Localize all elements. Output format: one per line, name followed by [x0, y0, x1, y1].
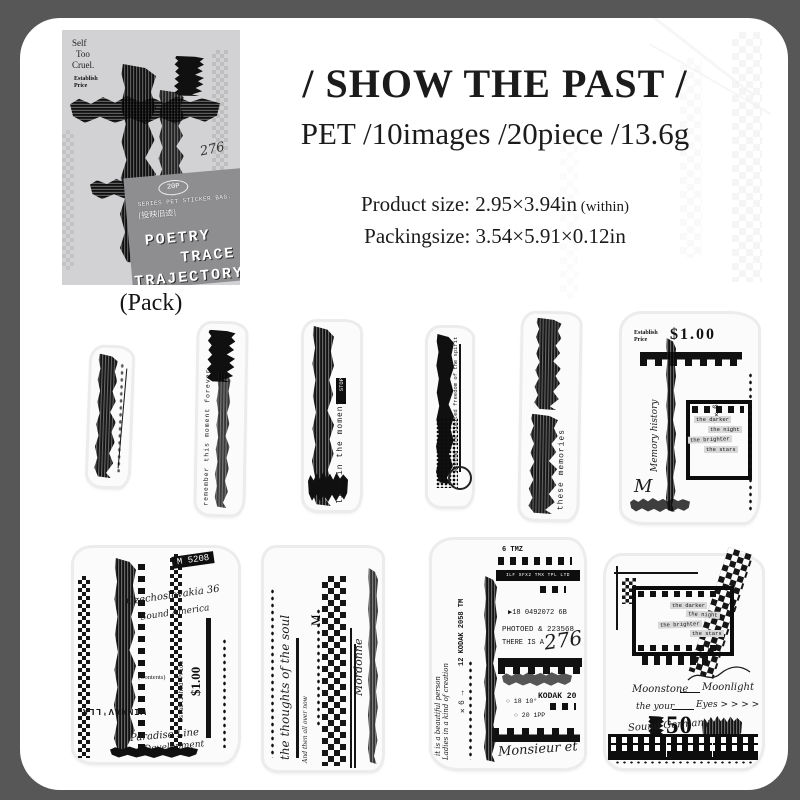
package-chinese-title: [投映旧迹] — [138, 207, 176, 221]
sticker-ticket-strip — [88, 347, 133, 486]
ink-bar — [666, 338, 676, 512]
package-title-trace: TRACE — [180, 245, 236, 267]
vertical-script: Memory history — [650, 376, 660, 472]
product-size: Product size: 2.95×3.94in (within) — [250, 192, 740, 217]
sticker-freedom-bar: whether are limited freedom of the spiri… — [428, 328, 472, 506]
badge-20p: 20P — [158, 179, 189, 197]
vertical-rule — [296, 638, 299, 758]
sticker-film-m5208: M 5208 Czechoslovakia 36 Sound America $… — [74, 548, 238, 762]
kodak20-text: KODAK 20 — [538, 692, 576, 701]
film-edge — [78, 576, 90, 758]
tmz-text: 6 TMZ — [502, 546, 523, 554]
quote-label: the night — [686, 610, 720, 619]
dotted-edge — [270, 588, 275, 758]
frame-divider — [666, 737, 667, 757]
sticker-dollar-collage: Establish Price $1.00 Memory history ×6 … — [622, 314, 758, 522]
square-pair — [540, 586, 566, 593]
dotted-edge — [222, 638, 227, 748]
square-row — [498, 557, 572, 565]
film-strip — [322, 576, 346, 766]
square-pair — [550, 703, 576, 710]
film-frame: the darker the night the brighter the st… — [632, 586, 734, 656]
brush-stroke — [534, 318, 562, 410]
moon-line2-right: Eyes > > > > — [696, 700, 759, 710]
package-label: 20P SERIES PET STICKER BAG. [投映旧迹] POETR… — [123, 168, 240, 285]
sticker-these-memories: these memories — [520, 314, 580, 520]
sprocket-row — [638, 591, 722, 597]
vertical-caption: remember this moment forever — [202, 382, 211, 506]
pack-caption: (Pack) — [62, 290, 240, 317]
quote-label: the darker — [694, 416, 731, 423]
dotted-edge — [316, 608, 321, 728]
contents-text: (Contents) — [138, 674, 165, 681]
left-script: Ladies in a kind of creation — [442, 630, 450, 760]
ruler-comb — [640, 352, 742, 366]
big-m-script: M — [634, 476, 652, 497]
quote-label: the brighter — [658, 620, 702, 629]
there-is-text: THERE IS A — [502, 639, 544, 647]
page-subtitle: PET /10images /20piece /13.6g — [250, 116, 740, 152]
package-photo: Self Too Cruel. Establish Price 276 20P … — [62, 30, 240, 285]
price-label-vertical: Established Price — [178, 632, 185, 722]
package-film-edge — [62, 130, 74, 270]
package-establish-price: Establish Price — [74, 76, 98, 90]
left-script: it is a beautiful person — [434, 636, 442, 756]
package-corner-text: Self Too Cruel. — [72, 38, 94, 71]
monsieur-script: Monsieur et — [498, 739, 579, 760]
package-title-poetry: POETRY — [144, 227, 211, 250]
vertical-rule — [206, 618, 211, 738]
page-title: / SHOW THE PAST / — [250, 60, 740, 107]
x6-arrow: ×6 → — [458, 668, 467, 714]
dotted-row — [614, 760, 754, 765]
grunge-edge — [368, 568, 378, 764]
watermark-filmstrip — [560, 138, 578, 298]
ink-smear — [502, 672, 572, 686]
moon-line2-left: the your — [636, 702, 674, 712]
product-size-text: Product size: 2.95×3.94in — [361, 192, 577, 216]
sprocket-comb — [498, 658, 582, 674]
dotted-edge — [748, 372, 753, 512]
quote-label: the night — [708, 426, 742, 433]
product-screenshot: / SHOW THE PAST / PET /10images /20piece… — [0, 0, 800, 800]
package-title-trajectory: TRAJECTORY — [134, 264, 240, 285]
frame-code: ▶18 0492072 6B — [508, 608, 567, 617]
sprocket-row — [638, 645, 722, 651]
thin-line — [459, 344, 461, 472]
sticker-kodak-collage: it is a beautiful person Ladies in a kin… — [432, 540, 584, 768]
price-stamp: $1.00 — [670, 326, 716, 344]
moon-line1-left: Moonstone — [632, 684, 688, 695]
vertical-script-small: And then all over now — [302, 668, 309, 763]
ink-bar — [94, 354, 118, 479]
price-vertical: $1.00 — [188, 626, 204, 696]
vertical-rule — [350, 628, 352, 768]
sticker-remember-moment: remember this moment forever — [196, 324, 245, 515]
package-series-text: SERIES PET STICKER BAG. — [137, 193, 232, 208]
dash-line — [680, 692, 700, 693]
inverted-text: WIMMAV'LLA — [82, 706, 146, 716]
packing-size: Packingsize: 3.54×5.91×0.12in — [250, 224, 740, 249]
thin-hline — [614, 572, 698, 574]
vertical-caption: whether are limited freedom of the spiri… — [452, 346, 459, 472]
kodak-side-text: 12 KODAK 2058 TM — [458, 546, 466, 666]
quote-label: the darker — [670, 602, 707, 609]
sprocket-row — [692, 406, 744, 413]
vertical-caption: live in the moment — [336, 410, 345, 504]
sprocket-column — [138, 562, 145, 750]
quote-label: the stars — [704, 446, 738, 453]
sticker-thoughts-soul: the thoughts of the soul And then all ov… — [264, 548, 382, 770]
sticker-moonlight-50: the darker the night the brighter the st… — [606, 556, 762, 768]
dotted-line — [468, 660, 473, 760]
circle-note: ○ 18 10° — [506, 698, 537, 705]
moon-line1-right: Moonlight — [702, 682, 754, 693]
frame-divider — [712, 737, 713, 757]
vertical-script-main: the thoughts of the soul — [278, 560, 292, 760]
circle-note: ○ 20 1PP — [514, 712, 545, 719]
package-ink-blob — [174, 56, 204, 96]
quote-label: the stars — [690, 630, 724, 637]
dash-line — [672, 709, 694, 710]
film-bar: ILF SFX2 TMX TPL LTD — [496, 570, 580, 581]
vertical-rule — [354, 644, 356, 768]
sticker-live-in-moment: STOP live in the moment — [304, 322, 360, 510]
film-bar — [114, 558, 136, 754]
number-276: 276 — [543, 625, 584, 654]
brush-stroke — [528, 414, 558, 514]
bottom-film-strip — [608, 734, 758, 760]
vertical-caption: these memories — [556, 410, 567, 510]
thin-vline — [616, 566, 618, 630]
brush-stroke — [214, 372, 230, 508]
establish-price-text: Establish Price — [634, 330, 658, 344]
product-size-suffix: (within) — [577, 199, 629, 215]
ink-smear — [630, 498, 690, 512]
